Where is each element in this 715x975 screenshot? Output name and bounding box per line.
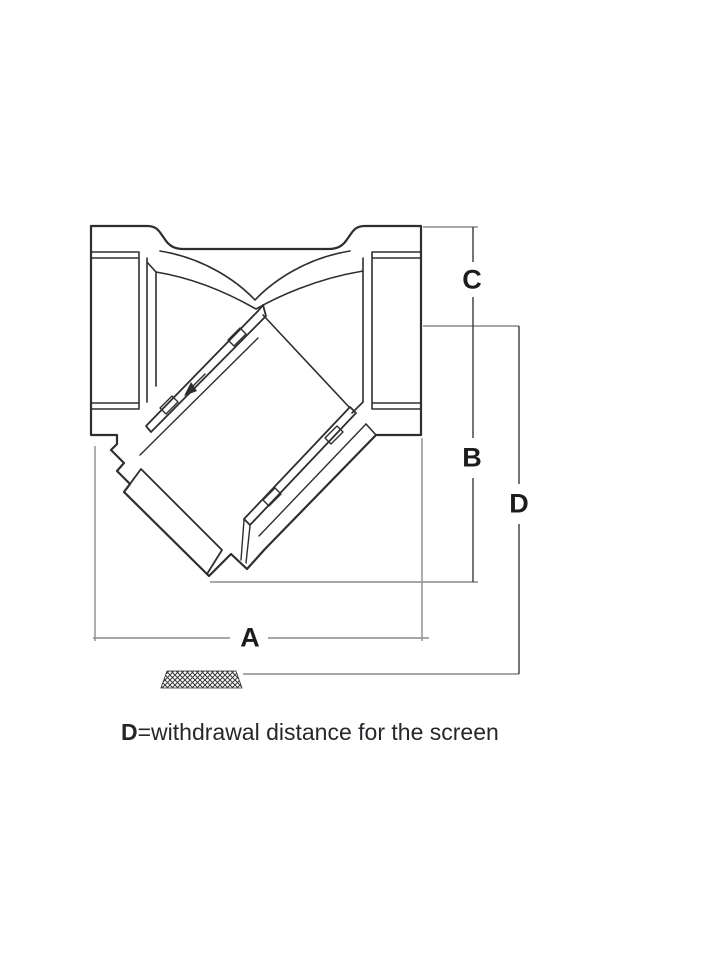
dimension-label-a: A	[240, 625, 260, 652]
left-socket-detail	[91, 252, 156, 409]
extension-lines	[95, 227, 519, 674]
figure-canvas: C B D A D=withdrawal distance for the sc…	[0, 0, 715, 975]
strainer-cap	[124, 469, 222, 574]
dimension-lines	[93, 227, 519, 674]
dimension-label-b: B	[462, 445, 482, 472]
caption-term: D	[121, 719, 138, 745]
body-saddle-curves	[156, 251, 363, 309]
caption-text: D=withdrawal distance for the screen	[121, 719, 499, 747]
dimension-label-d: D	[509, 491, 529, 518]
right-socket-detail	[363, 252, 421, 409]
dimension-label-c: C	[462, 267, 482, 294]
withdrawn-screen-hatch-icon	[161, 671, 242, 688]
caption-definition: =withdrawal distance for the screen	[138, 719, 499, 745]
screen-cartridge	[146, 305, 356, 563]
y-strainer-cross-section-drawing	[0, 0, 715, 975]
